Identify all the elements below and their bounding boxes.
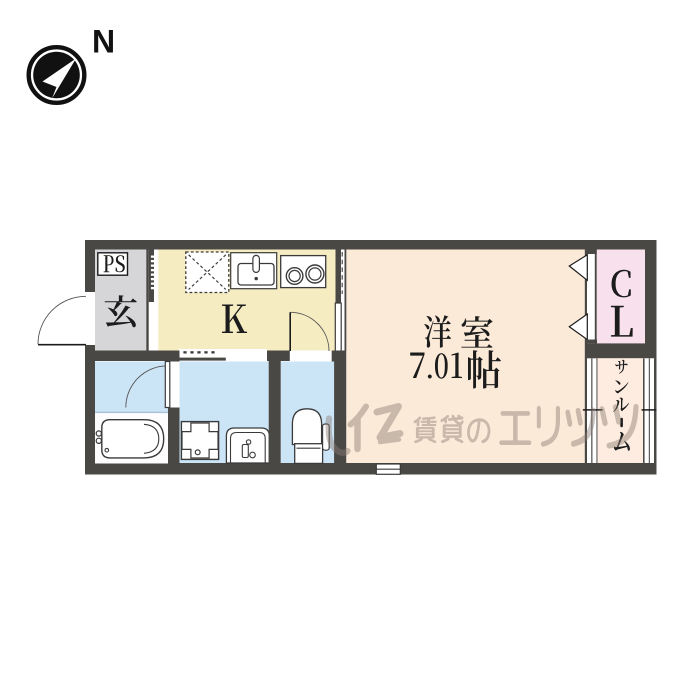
svg-text:N: N <box>92 24 115 60</box>
